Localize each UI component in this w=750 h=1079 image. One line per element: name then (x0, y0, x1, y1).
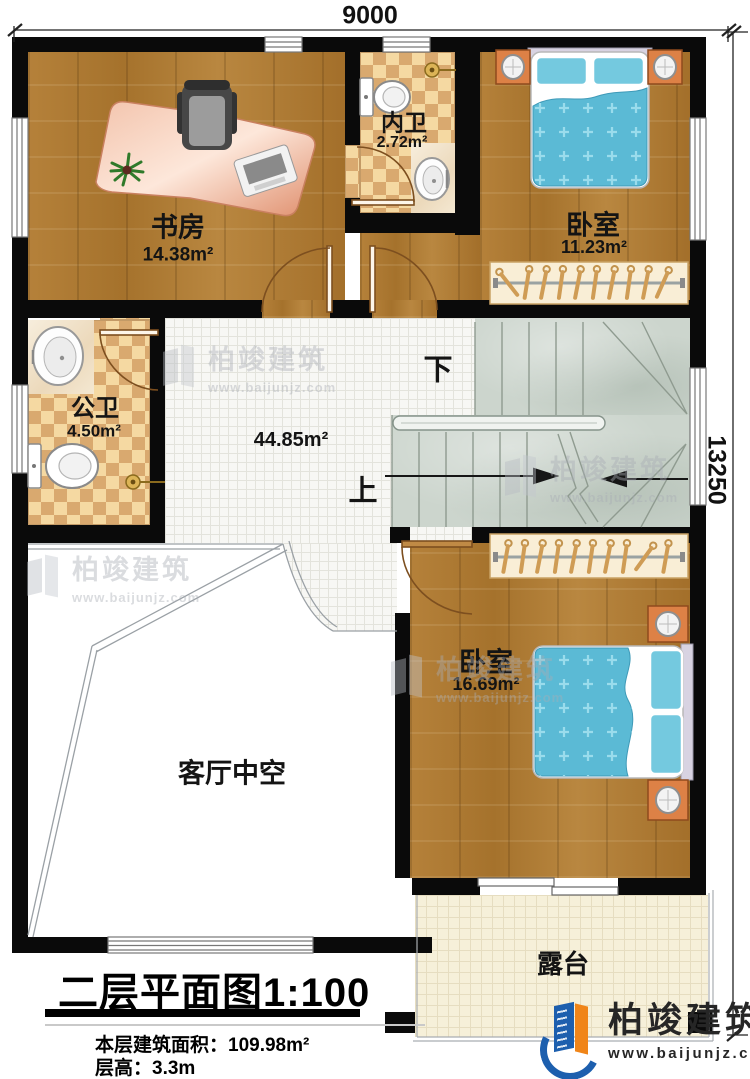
window-left-publicbath (12, 385, 28, 473)
floor-plan: 书房 14.38m² 内卫 2.72m² 卧室 11.23m² 公卫 4.50m… (0, 0, 750, 1079)
public-bath-label: 公卫 (71, 397, 119, 421)
wall-left-c (12, 473, 28, 953)
wall-mid-3 (437, 300, 706, 318)
watermark: 柏竣建筑 www.baijunjz.com (24, 548, 200, 605)
window-left-study (12, 118, 28, 237)
dimension-top: 9000 (342, 4, 398, 29)
bedroom-top-area: 11.23m² (561, 238, 627, 256)
terrace-sliding-door (478, 878, 618, 895)
wall-mid-2 (330, 300, 372, 318)
floor-height-note: 层高：3.3m (95, 1053, 195, 1079)
wall-bottom-b (313, 937, 432, 953)
wall-publicbath-bottom (12, 525, 165, 543)
brand-website: www.baijunjz.com (608, 1045, 750, 1062)
dimension-right: 13250 (704, 435, 729, 505)
wall-terrace-bl (385, 1012, 415, 1033)
wall-mid-1 (12, 300, 262, 318)
watermark: 柏竣建筑 www.baijunjz.com (160, 338, 336, 395)
window-bottom-void (108, 937, 313, 953)
watermark: 柏竣建筑 www.baijunjz.com (388, 648, 564, 705)
bedroom-top-label: 卧室 (566, 213, 620, 240)
hall-area: 44.85m² (254, 430, 329, 450)
watermark-logo-icon (160, 344, 200, 390)
watermark-logo-icon (502, 454, 542, 500)
wall-bed2-top-a (390, 527, 410, 543)
bedroom-top-floor (480, 52, 690, 302)
inner-bath-door-gap (345, 145, 360, 198)
inner-bath-counter (411, 143, 455, 213)
inner-bath-area: 2.72m² (377, 135, 428, 151)
watermark-url: www.baijunjz.com (550, 490, 678, 505)
wall-bed2-bottom-b (618, 878, 706, 895)
stair-upper-run (475, 318, 690, 415)
brand-logo-icon (538, 1002, 600, 1066)
watermark-url: www.baijunjz.com (72, 590, 200, 605)
wall-innerbath-right (455, 52, 480, 235)
hall-corridor-floor (283, 543, 397, 631)
corridor-door-gap-floor (372, 300, 437, 318)
study-area: 14.38m² (143, 246, 214, 265)
wall-right-c (690, 505, 706, 890)
wall-left-a (12, 52, 28, 118)
watermark-name: 柏竣建筑 (550, 448, 678, 487)
watermark-name: 柏竣建筑 (72, 548, 200, 587)
wall-right-a (690, 52, 706, 118)
wall-top (12, 37, 706, 52)
title-underline (45, 1009, 360, 1017)
inner-bath-label: 内卫 (381, 112, 427, 135)
public-bath-counter (28, 320, 94, 394)
wall-bed2-top-b (472, 527, 706, 543)
corridor-floor (360, 233, 480, 302)
bedroom-bottom-floor (410, 543, 690, 878)
brand-name: 柏竣建筑 (608, 1002, 750, 1041)
watermark-name: 柏竣建筑 (436, 648, 564, 687)
brand-logo: 柏竣建筑 www.baijunjz.com (538, 1002, 750, 1066)
title-divider (45, 1024, 425, 1026)
wall-bed2-bottom-a (412, 878, 480, 895)
watermark-url: www.baijunjz.com (208, 380, 336, 395)
public-bath-area: 4.50m² (67, 423, 121, 440)
watermark-name: 柏竣建筑 (208, 338, 336, 377)
wall-bottom-a (12, 937, 108, 953)
study-label: 书房 (151, 215, 205, 242)
stairs-down-label: 下 (423, 357, 452, 386)
watermark-logo-icon (388, 654, 428, 700)
watermark: 柏竣建筑 www.baijunjz.com (502, 448, 678, 505)
watermark-logo-icon (24, 554, 64, 600)
stairs-up-label: 上 (348, 478, 377, 507)
wall-innerbath-left-a (345, 52, 360, 145)
window-right-bedroom-top (690, 118, 706, 240)
watermark-url: www.baijunjz.com (436, 690, 564, 705)
study-door-gap-floor (262, 300, 330, 318)
living-void-label: 客厅中空 (178, 761, 286, 788)
terrace-label: 露台 (537, 951, 589, 977)
